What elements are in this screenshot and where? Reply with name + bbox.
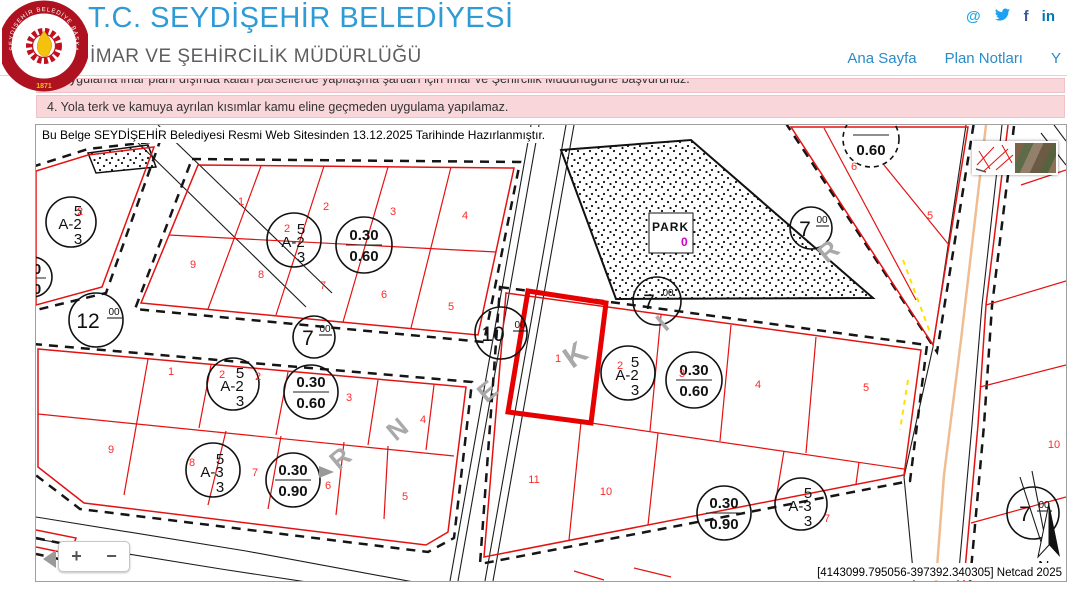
svg-text:0.60: 0.60	[296, 395, 325, 412]
svg-text:1: 1	[168, 366, 174, 378]
svg-text:0.90: 0.90	[709, 516, 738, 533]
svg-text:9: 9	[190, 259, 196, 271]
svg-text:2: 2	[617, 360, 623, 372]
header-divider	[0, 75, 1067, 76]
svg-text:7: 7	[799, 218, 811, 241]
svg-text:7: 7	[320, 280, 326, 292]
svg-text:[4143099.795056-397392.340305]: [4143099.795056-397392.340305] Netcad 20…	[817, 567, 1062, 579]
svg-text:3: 3	[236, 393, 244, 410]
svg-text:3: 3	[297, 249, 305, 266]
svg-text:7: 7	[824, 513, 830, 525]
svg-text:4: 4	[755, 379, 761, 391]
nav-item-clipped[interactable]: Y	[1051, 50, 1061, 67]
svg-text:PARK: PARK	[652, 220, 689, 234]
zoom-out-button[interactable]: −	[98, 543, 125, 570]
svg-text:4: 4	[420, 414, 426, 426]
svg-text:3: 3	[390, 206, 396, 218]
svg-text:9: 9	[108, 444, 114, 456]
svg-text:6: 6	[851, 161, 857, 173]
svg-text:7: 7	[302, 327, 314, 350]
svg-text:5: 5	[402, 491, 408, 503]
notice-bar-3: 3. Uygulama imar planı dışında kalan par…	[36, 78, 1065, 93]
svg-text:3: 3	[346, 392, 352, 404]
svg-text:2: 2	[284, 223, 290, 235]
svg-text:8: 8	[189, 457, 195, 469]
park-label: PARK 0	[649, 213, 693, 253]
coordinates-note: [4143099.795056-397392.340305] Netcad 20…	[817, 563, 1066, 580]
svg-text:0.30: 0.30	[296, 374, 325, 391]
document-note: Bu Belge SEYDİŞEHİR Belediyesi Resmi Web…	[38, 127, 550, 143]
main-nav: Ana Sayfa Plan Notları Y	[847, 50, 1061, 67]
email-icon[interactable]: @	[966, 8, 981, 26]
svg-text:1: 1	[238, 196, 244, 208]
twitter-icon[interactable]	[994, 7, 1011, 27]
notice-bar-4: 4. Yola terk ve kamuya ayrılan kısımlar …	[36, 95, 1065, 118]
svg-text:Bu Belge SEYDİŞEHİR Belediyesi: Bu Belge SEYDİŞEHİR Belediyesi Resmi Web…	[42, 128, 545, 142]
svg-text:00: 00	[816, 215, 828, 226]
minimap-aerial-thumbnail	[1015, 143, 1056, 173]
logo-year: 1871	[36, 83, 52, 90]
page-title: T.C. SEYDİŞEHİR BELEDİYESİ	[88, 2, 514, 35]
svg-text:3: 3	[74, 231, 82, 248]
svg-text:5: 5	[448, 301, 454, 313]
overview-minimap[interactable]	[972, 141, 1058, 175]
nav-ana-sayfa[interactable]: Ana Sayfa	[847, 50, 916, 67]
svg-text:7: 7	[252, 467, 258, 479]
svg-text:0.60: 0.60	[679, 383, 708, 400]
notice-text: 4. Yola terk ve kamuya ayrılan kısımlar …	[47, 100, 508, 114]
social-links: @ f in	[966, 7, 1055, 27]
svg-text:00: 00	[319, 324, 331, 335]
park-marker: 0	[681, 235, 688, 249]
pan-left-arrow-icon[interactable]	[43, 550, 56, 568]
linkedin-icon[interactable]: in	[1042, 8, 1055, 26]
svg-text:10: 10	[481, 323, 504, 346]
svg-text:0.30: 0.30	[278, 462, 307, 479]
svg-text:0: 0	[36, 261, 41, 278]
svg-text:2: 2	[77, 206, 83, 218]
svg-text:12: 12	[76, 310, 99, 333]
svg-text:3: 3	[804, 513, 812, 530]
zoom-in-button[interactable]: +	[63, 543, 90, 570]
svg-text:00: 00	[662, 288, 674, 299]
svg-text:5: 5	[927, 210, 933, 222]
notice-text: 3. Uygulama imar planı dışında kalan par…	[47, 78, 1054, 87]
svg-text:0: 0	[36, 281, 41, 298]
svg-text:4: 4	[462, 210, 468, 222]
svg-text:10: 10	[1048, 439, 1060, 451]
map-zoom-control: + −	[58, 541, 130, 572]
facebook-icon[interactable]: f	[1024, 8, 1029, 26]
svg-text:3: 3	[216, 479, 224, 496]
municipality-logo[interactable]: SEYDİŞEHİR BELEDİYE BAŞKANLIĞI 1871	[2, 0, 88, 99]
svg-text:00: 00	[514, 320, 526, 331]
svg-text:11: 11	[528, 474, 539, 486]
svg-text:0.30: 0.30	[349, 227, 378, 244]
nav-plan-notlari[interactable]: Plan Notları	[945, 50, 1023, 67]
svg-text:0.90: 0.90	[278, 483, 307, 500]
svg-text:2: 2	[219, 369, 225, 381]
svg-text:1: 1	[555, 353, 561, 365]
svg-text:6: 6	[325, 480, 331, 492]
svg-text:3: 3	[679, 368, 685, 380]
svg-text:2: 2	[255, 371, 261, 383]
svg-text:2: 2	[323, 201, 329, 213]
minimap-plan-thumbnail	[974, 143, 1015, 173]
svg-text:8: 8	[258, 269, 264, 281]
svg-text:5: 5	[863, 382, 869, 394]
svg-text:0.60: 0.60	[856, 142, 885, 159]
svg-text:3: 3	[631, 382, 639, 399]
svg-text:10: 10	[600, 486, 612, 498]
svg-text:0.30: 0.30	[709, 495, 738, 512]
svg-text:00: 00	[108, 307, 120, 318]
svg-text:0.60: 0.60	[349, 248, 378, 265]
page-subtitle: İMAR VE ŞEHİRCİLİK MÜDÜRLÜĞÜ	[90, 46, 422, 68]
svg-text:6: 6	[381, 289, 387, 301]
zoning-map[interactable]: 5 A-2 3 5 A-2 3 5 A-2 3 5 A-3 3 5 A-2 3 …	[35, 124, 1067, 582]
